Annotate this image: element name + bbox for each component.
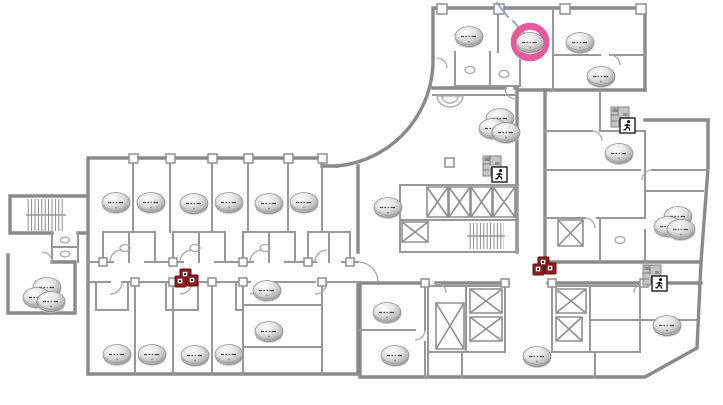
access-point-icon[interactable] <box>523 347 551 369</box>
floorplan-drawing <box>0 0 723 405</box>
access-point-icon[interactable] <box>253 281 281 303</box>
floorplan-canvas <box>0 0 723 405</box>
access-point-icon[interactable] <box>653 316 681 338</box>
access-point-icon[interactable] <box>290 193 318 215</box>
floor-exit-icon[interactable] <box>483 156 507 182</box>
access-point-icon[interactable] <box>255 194 283 216</box>
access-point-icon[interactable] <box>566 33 594 55</box>
access-point-icon[interactable] <box>587 67 615 89</box>
access-point-icon[interactable] <box>667 220 695 242</box>
access-point-icon[interactable] <box>492 123 520 145</box>
access-point-icon[interactable] <box>215 193 243 215</box>
access-point-icon[interactable] <box>381 346 409 368</box>
access-point-icon[interactable] <box>455 27 483 49</box>
access-point-icon[interactable] <box>137 193 165 215</box>
access-point-icon[interactable] <box>103 345 131 367</box>
access-point-icon[interactable] <box>181 346 209 368</box>
access-point-icon[interactable] <box>102 193 130 215</box>
access-point-icon[interactable] <box>180 194 208 216</box>
access-point-icon[interactable] <box>605 144 633 166</box>
switch-cluster-icon[interactable] <box>175 269 198 287</box>
access-point-icon[interactable] <box>138 345 166 367</box>
access-point-icon[interactable] <box>215 345 243 367</box>
access-point-icon[interactable] <box>255 322 283 344</box>
floor-exit-icon[interactable] <box>611 107 635 133</box>
access-point-icon[interactable] <box>373 303 401 325</box>
access-point-icon[interactable] <box>374 198 402 220</box>
switch-cluster-icon[interactable] <box>533 257 556 275</box>
access-point-icon[interactable] <box>37 292 65 314</box>
access-point-icon-selected[interactable] <box>516 33 544 55</box>
